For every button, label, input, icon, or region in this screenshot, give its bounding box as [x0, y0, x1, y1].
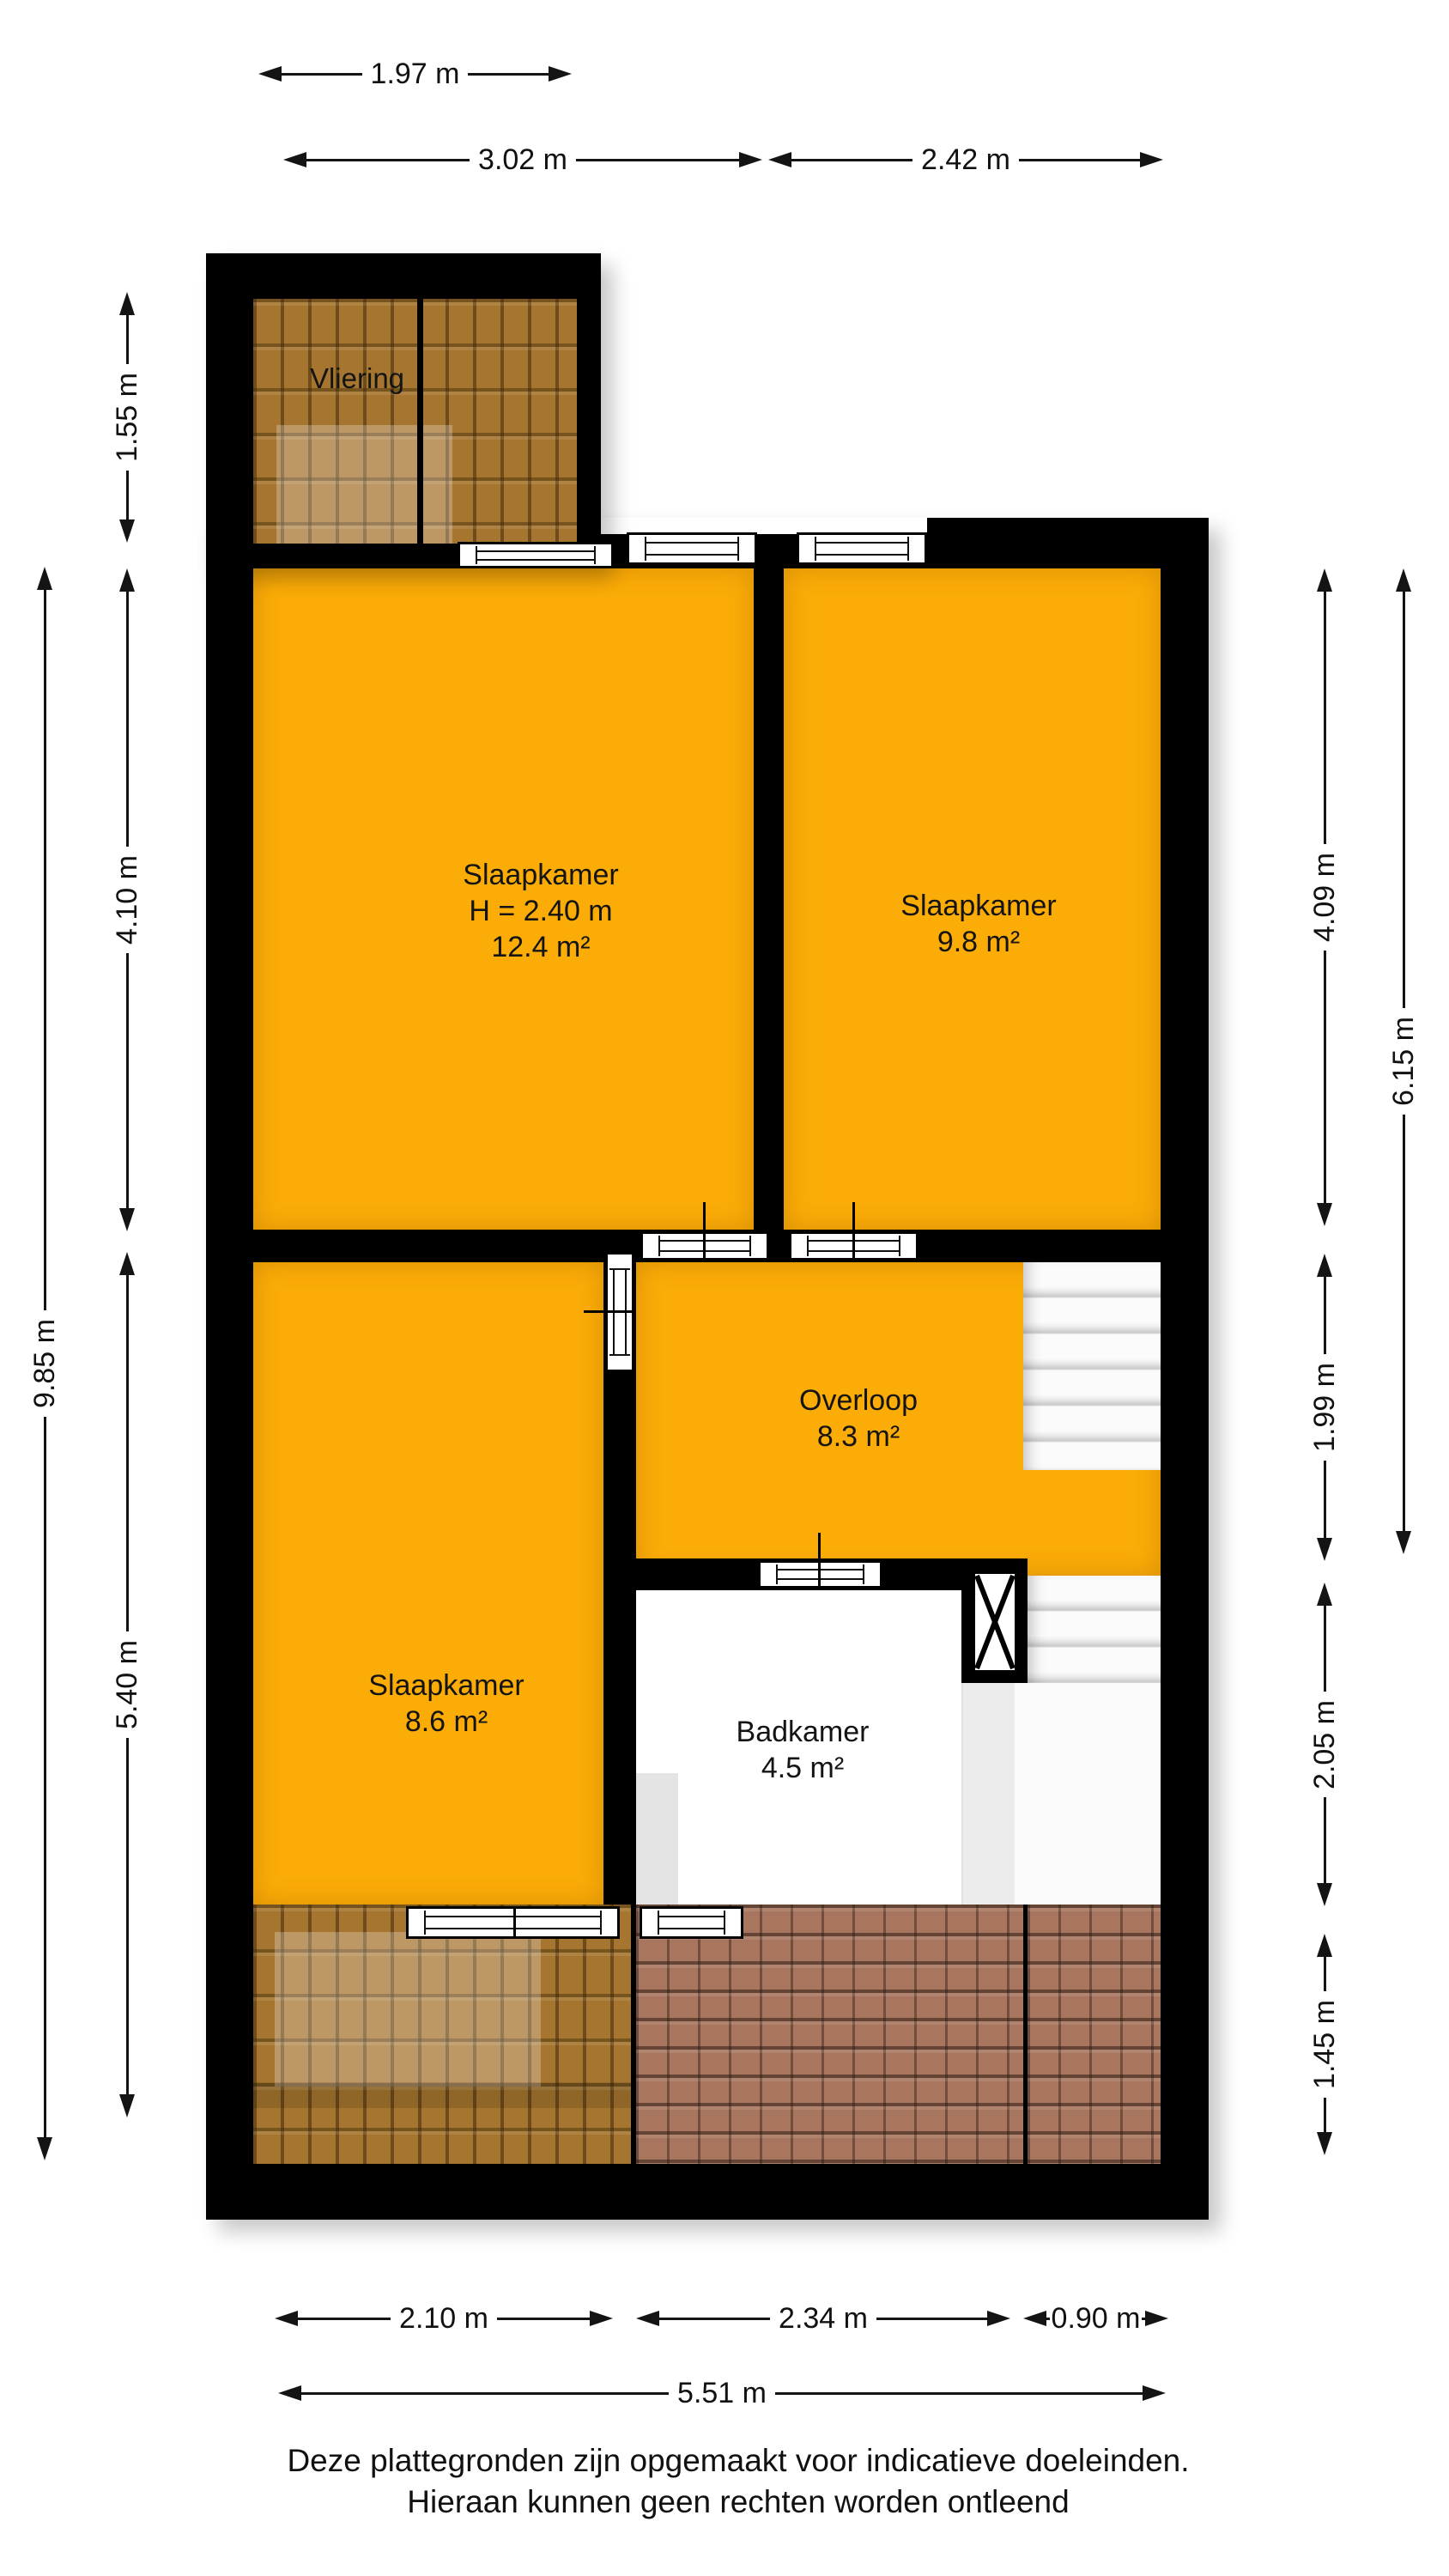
arrowhead-down-icon: [1317, 1203, 1332, 1226]
dim-line: [282, 73, 362, 76]
window-cap-left: [645, 537, 646, 561]
window-cap-left: [815, 537, 816, 561]
dim-label: 9.85 m: [28, 1310, 62, 1417]
dim-line: [126, 953, 129, 1208]
window-divider: [513, 1909, 516, 1936]
dim-line: [1324, 1797, 1326, 1883]
dim-line: [1324, 1461, 1326, 1538]
dim-line: [659, 2318, 770, 2320]
dim-line: [576, 159, 739, 161]
dim-label: 0.90 m: [1050, 2302, 1143, 2336]
slaapkamer-groot-label: Slaapkamer H = 2.40 m 12.4 m²: [369, 857, 712, 965]
dim-label: 6.15 m: [1387, 1008, 1421, 1115]
arrowhead-left-icon: [636, 2311, 659, 2326]
arrowhead-right-icon: [739, 152, 762, 167]
dim-line: [1403, 592, 1405, 1008]
window-glazing: [816, 542, 907, 555]
room-name: Slaapkamer: [369, 857, 712, 893]
door-cap-left: [807, 1236, 809, 1256]
arrowhead-down-icon: [1396, 1531, 1411, 1554]
dim-line: [126, 471, 129, 519]
dim-label: 2.05 m: [1308, 1692, 1342, 1798]
dim-label: 1.45 m: [1308, 1991, 1342, 2098]
disclaimer-line-2: Hieraan kunnen geen rechten worden ontle…: [153, 2482, 1324, 2523]
arrowhead-left-icon: [768, 152, 791, 167]
room-area: 8.6 m²: [275, 1704, 618, 1740]
arrowhead-up-icon: [1396, 568, 1411, 592]
dimension-right-overloop: 1.99 m: [1306, 1254, 1343, 1561]
stairs-landing: [961, 1683, 1161, 1905]
dim-label: 1.97 m: [362, 58, 469, 91]
room-area: 4.5 m²: [631, 1750, 974, 1786]
window-bottom-left: [406, 1906, 620, 1939]
arrowhead-up-icon: [1317, 1583, 1332, 1606]
arrowhead-up-icon: [119, 1252, 135, 1275]
room-name: Slaapkamer: [807, 888, 1150, 924]
arrowhead-down-icon: [1317, 2132, 1332, 2155]
window-cap-left: [476, 546, 477, 564]
dimension-right-roof: 1.45 m: [1306, 1934, 1343, 2155]
window-cap-right: [600, 1911, 602, 1935]
roof-bottom-right: [1028, 1905, 1161, 2164]
window-cap-right: [737, 537, 739, 561]
arrowhead-up-icon: [1317, 1934, 1332, 1957]
vliering-label: Vliering: [228, 361, 486, 397]
roof-dormer-overlay: [275, 1932, 541, 2087]
dim-line: [126, 592, 129, 847]
dim-label: 2.42 m: [912, 143, 1019, 177]
badkamer-kneewall: [636, 1773, 678, 1905]
window-cap-right: [594, 546, 596, 564]
dim-line: [1324, 1957, 1326, 1991]
arrowhead-left-icon: [283, 152, 306, 167]
window-glazing: [659, 1916, 724, 1929]
arrowhead-left-icon: [1023, 2311, 1046, 2326]
dimension-left-total: 9.85 m: [26, 567, 64, 2160]
disclaimer: Deze plattegronden zijn opgemaakt voor i…: [153, 2440, 1324, 2523]
dim-line: [1324, 2098, 1326, 2132]
arrowhead-left-icon: [258, 66, 282, 82]
dim-line: [468, 73, 549, 76]
dim-line: [876, 2318, 987, 2320]
window-cap-left: [658, 1911, 659, 1935]
dim-line: [1324, 951, 1326, 1203]
dimension-right-bedrooms: 4.09 m: [1306, 568, 1343, 1226]
shaft-x: [975, 1574, 1015, 1670]
badkamer-label: Badkamer 4.5 m²: [631, 1714, 974, 1786]
room-area: 9.8 m²: [807, 924, 1150, 960]
dim-line: [1324, 592, 1326, 844]
vliering-divider: [417, 299, 423, 544]
arrowhead-left-icon: [275, 2311, 298, 2326]
arrowhead-down-icon: [119, 519, 135, 543]
arrowhead-left-icon: [278, 2385, 301, 2401]
dimension-top-1: 1.97 m: [258, 55, 572, 93]
vliering-overlay: [276, 425, 452, 544]
arrowhead-up-icon: [119, 292, 135, 315]
room-area: 12.4 m²: [369, 929, 712, 965]
dim-label: 2.10 m: [391, 2302, 497, 2336]
shaft-x-icon: [975, 1574, 1015, 1670]
dim-line: [775, 2392, 1143, 2395]
arrowhead-right-icon: [987, 2311, 1010, 2326]
dim-label: 1.55 m: [111, 364, 144, 471]
dim-line: [126, 1738, 129, 2094]
stairs-upper: [1023, 1262, 1161, 1470]
arrowhead-up-icon: [119, 568, 135, 592]
window-cap-right: [724, 1911, 725, 1935]
window-top-vliering: [458, 542, 614, 568]
dimension-left-upper: 4.10 m: [108, 568, 146, 1231]
window-glazing: [477, 550, 594, 561]
arrowhead-down-icon: [119, 2094, 135, 2117]
dim-line: [791, 159, 912, 161]
arrowhead-up-icon: [1317, 1254, 1332, 1277]
dim-line: [306, 159, 470, 161]
dimension-bottom-1: 2.10 m: [275, 2300, 613, 2337]
dim-line: [301, 2392, 669, 2395]
room-height: H = 2.40 m: [369, 893, 712, 929]
dimension-bottom-3: 0.90 m: [1023, 2300, 1168, 2337]
door-cap-right: [899, 1236, 900, 1256]
dim-line: [1324, 1606, 1326, 1692]
dimension-left-vliering: 1.55 m: [108, 292, 146, 543]
arrowhead-down-icon: [119, 1208, 135, 1231]
arrowhead-down-icon: [37, 2137, 52, 2160]
room-area: 8.3 m²: [687, 1419, 1030, 1455]
dim-line: [1324, 1277, 1326, 1354]
dim-line: [126, 1275, 129, 1631]
wall-between-bedrooms: [754, 568, 784, 1230]
slaapkamer-rechts-label: Slaapkamer 9.8 m²: [807, 888, 1150, 960]
dim-label: 2.34 m: [770, 2302, 876, 2336]
dim-label: 1.99 m: [1308, 1354, 1342, 1461]
window-glazing: [646, 542, 737, 555]
room-name: Overloop: [687, 1382, 1030, 1419]
dimension-top-2: 3.02 m: [283, 141, 762, 179]
door-cap-bottom: [609, 1354, 630, 1356]
door-cap-left: [776, 1564, 778, 1584]
door-cap-top: [609, 1268, 630, 1270]
window-cap-right: [907, 537, 909, 561]
arrowhead-up-icon: [37, 567, 52, 590]
roof-bottom-middle: [636, 1905, 1023, 2164]
arrowhead-right-icon: [1143, 2385, 1166, 2401]
window-top-1: [627, 532, 757, 565]
window-top-2: [797, 532, 927, 565]
door-cap-right: [863, 1564, 864, 1584]
dim-label: 3.02 m: [470, 143, 576, 177]
overloop-label: Overloop 8.3 m²: [687, 1382, 1030, 1455]
dimension-bottom-2: 2.34 m: [636, 2300, 1010, 2337]
room-name: Badkamer: [631, 1714, 974, 1750]
door-cap-left: [658, 1236, 660, 1256]
dim-line: [44, 590, 46, 1310]
room-name: Vliering: [228, 361, 486, 397]
dim-line: [44, 1417, 46, 2137]
arrowhead-right-icon: [549, 66, 572, 82]
window-cap-left: [424, 1911, 426, 1935]
arrowhead-down-icon: [1317, 1538, 1332, 1561]
dimension-right-total: 6.15 m: [1385, 568, 1422, 1554]
room-slaapkamer-links-floor: [253, 1262, 603, 1905]
dim-label: 4.09 m: [1308, 844, 1342, 951]
dim-line: [126, 315, 129, 364]
dim-line: [1403, 1115, 1405, 1531]
dim-line: [1019, 159, 1140, 161]
floorplan-page: Vliering Slaapkamer H = 2.40 m 12.4 m² S…: [0, 0, 1449, 2576]
roof-shade-band: [253, 2082, 631, 2108]
dimension-right-badkamer: 2.05 m: [1306, 1583, 1343, 1906]
dim-line: [298, 2318, 391, 2320]
dim-label: 5.40 m: [111, 1631, 144, 1738]
dimension-left-lower: 5.40 m: [108, 1252, 146, 2117]
dim-label: 5.51 m: [669, 2377, 775, 2410]
dimension-bottom-total: 5.51 m: [278, 2374, 1166, 2412]
arrowhead-right-icon: [1145, 2311, 1168, 2326]
arrowhead-right-icon: [1140, 152, 1163, 167]
room-name: Slaapkamer: [275, 1668, 618, 1704]
dim-line: [497, 2318, 590, 2320]
arrowhead-right-icon: [590, 2311, 613, 2326]
dimension-top-3: 2.42 m: [768, 141, 1163, 179]
slaapkamer-links-label: Slaapkamer 8.6 m²: [275, 1668, 618, 1740]
arrowhead-down-icon: [1317, 1883, 1332, 1906]
dim-label: 4.10 m: [111, 847, 144, 953]
disclaimer-line-1: Deze plattegronden zijn opgemaakt voor i…: [153, 2440, 1324, 2482]
door-cap-right: [749, 1236, 751, 1256]
arrowhead-up-icon: [1317, 568, 1332, 592]
window-bottom-right: [640, 1906, 743, 1939]
